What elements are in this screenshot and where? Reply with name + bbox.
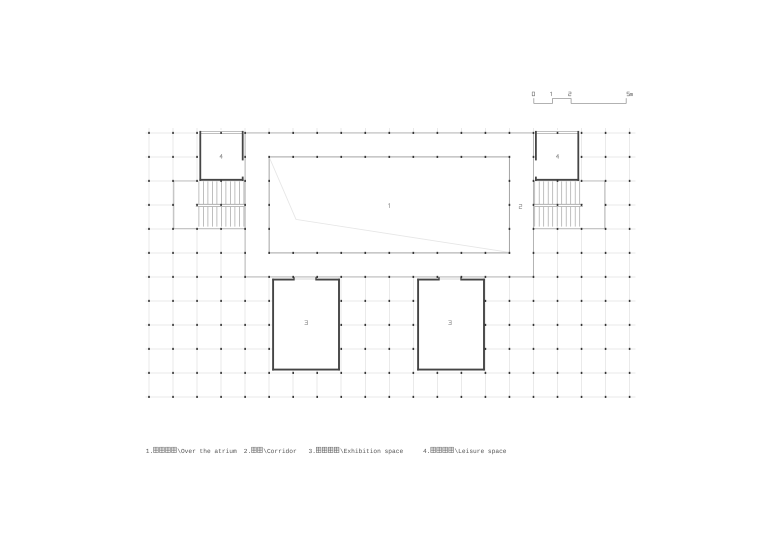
svg-text:2.: 2. <box>244 448 251 455</box>
svg-text:3.: 3. <box>309 448 316 455</box>
svg-text:\Leisure space: \Leisure space <box>454 448 506 455</box>
svg-text:\Exhibition space: \Exhibition space <box>340 448 404 455</box>
svg-text:\Over the atrium: \Over the atrium <box>177 448 237 455</box>
svg-text:\Corridor: \Corridor <box>263 448 297 455</box>
svg-text:4.: 4. <box>423 448 430 455</box>
svg-text:1.: 1. <box>146 448 153 455</box>
